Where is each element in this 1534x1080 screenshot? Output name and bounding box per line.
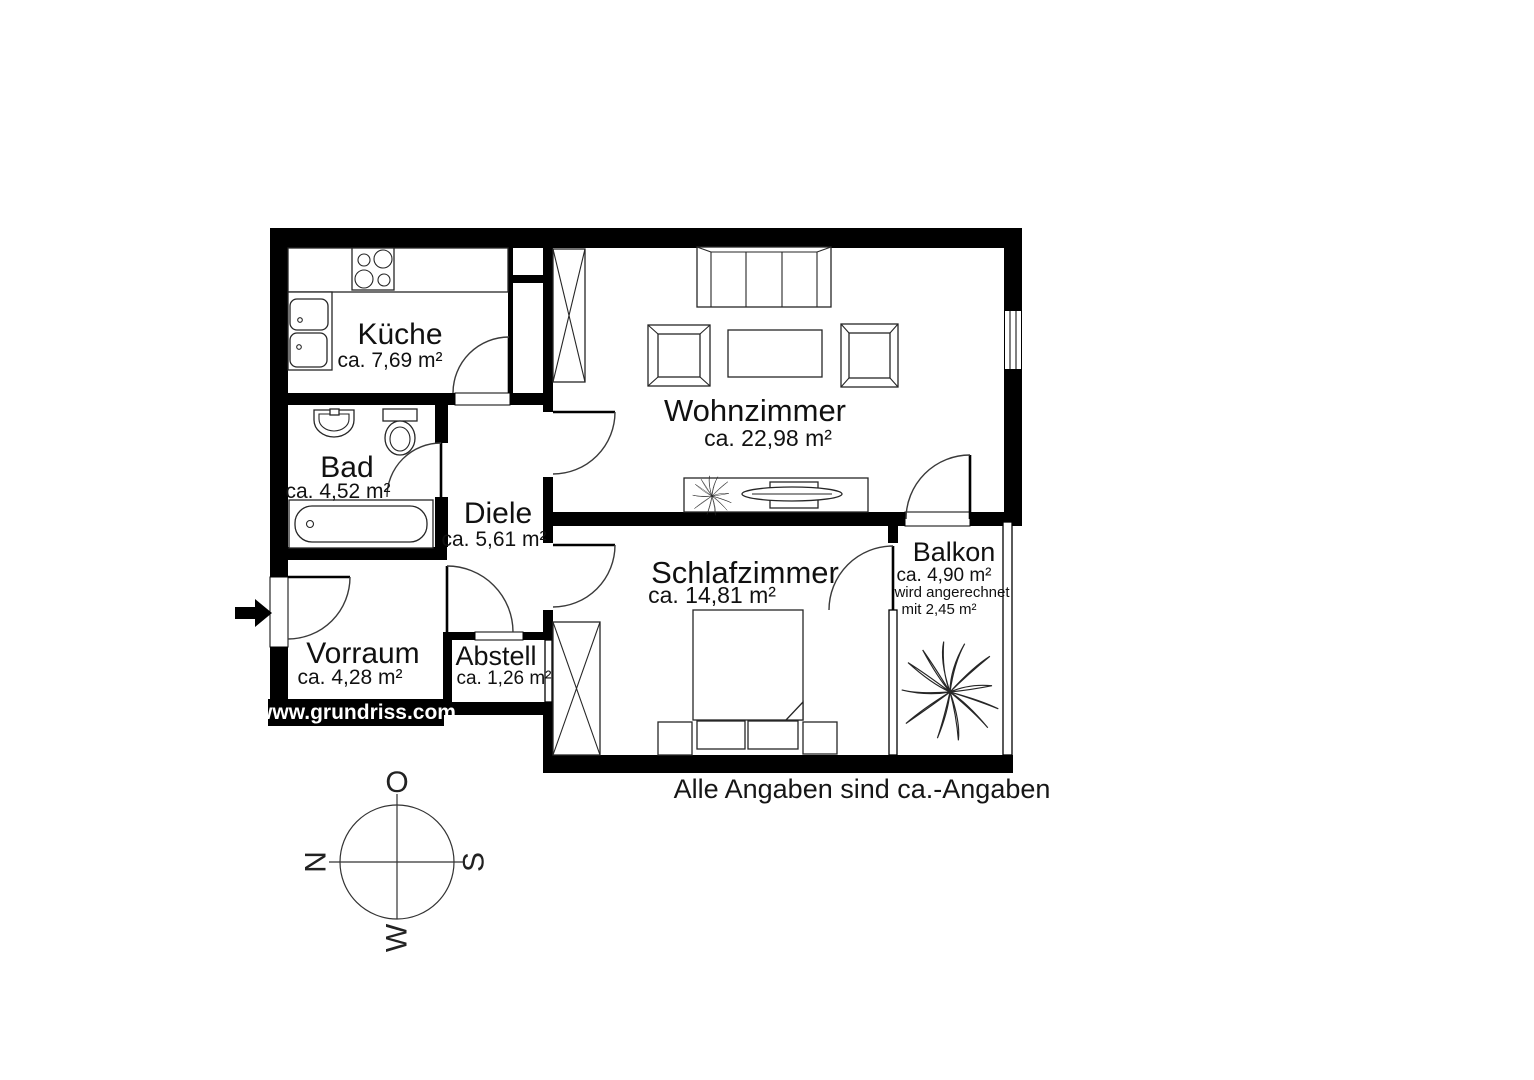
compass-north-label: N [300, 851, 333, 873]
wall-wohnzimmer-bottom-right [970, 512, 1022, 526]
wall-right-lower [1004, 370, 1022, 516]
room-area: ca. 4,90 m² [896, 565, 991, 586]
kueche-door-icon [453, 337, 509, 393]
room-label-vorraum: Vorraum ca. 4,28 m² [297, 637, 419, 689]
room-area: ca. 4,28 m² [297, 666, 402, 689]
wall-left-upper [270, 248, 288, 577]
entrance-opening [270, 577, 288, 647]
coffee-table-icon [728, 330, 822, 377]
nightstand-icon [658, 722, 692, 755]
shaft-strip [513, 283, 543, 393]
wall-schlafzimmer-left [543, 715, 553, 755]
watermark-text: www.grundriss.com [255, 701, 456, 724]
room-area: ca. 14,81 m² [648, 582, 776, 608]
balkon-door-opening [905, 512, 970, 526]
wardrobe-icon [553, 622, 600, 755]
bathtub-icon [289, 500, 433, 548]
compass-west-label: W [381, 923, 414, 952]
vorraum-diele-door-icon [447, 566, 513, 632]
partition-schlafzimmer-balkon [889, 610, 897, 755]
bed-icon [693, 610, 803, 749]
pillow-icon [748, 721, 798, 749]
wall-bad-right-upper [435, 405, 448, 443]
entrance-door-icon [288, 577, 350, 639]
plant-icon [902, 642, 999, 741]
room-label-wohnzimmer: Wohnzimmer ca. 22,98 m² [664, 393, 846, 451]
armchair-icon [841, 324, 898, 387]
compass-south-label: S [458, 852, 491, 872]
room-note: wird angerechnet [893, 584, 1010, 601]
pillow-icon [697, 721, 745, 749]
disclaimer-note: Alle Angaben sind ca.-Angaben [674, 774, 1051, 804]
wall-wohnzimmer-bottom [543, 512, 905, 526]
room-name: Küche [357, 318, 442, 351]
room-name: Diele [464, 497, 532, 530]
room-area: ca. 7,69 m² [337, 349, 442, 372]
kitchen-sink-icon [290, 299, 328, 367]
entrance-arrow-icon [235, 599, 272, 627]
wall-kueche-bottom [288, 393, 455, 405]
shafts [513, 248, 543, 393]
balkon-door-wohnzimmer-icon [906, 455, 970, 519]
schlafzimmer-door-icon [553, 545, 615, 607]
watermark: www.grundriss.com [255, 699, 456, 726]
room-name: Abstell [455, 641, 536, 671]
wall-top [270, 228, 1022, 248]
room-label-diele: Diele ca. 5,61 m² [441, 497, 546, 551]
shaft-niche [513, 248, 543, 275]
room-area: ca. 22,98 m² [704, 425, 832, 451]
balcony-railing [1003, 522, 1012, 755]
room-name: Wohnzimmer [664, 393, 846, 428]
sofa-icon [697, 247, 831, 307]
wall-right-upper [1004, 248, 1022, 310]
room-name: Balkon [913, 537, 996, 567]
wall-vorraum-top [270, 547, 447, 560]
window-icon [1005, 311, 1022, 370]
kueche-door-opening [455, 393, 510, 405]
room-label-bad: Bad ca. 4,52 m² [285, 451, 390, 503]
nightstand-icon [803, 722, 837, 754]
room-label-balkon: Balkon ca. 4,90 m² wird angerechnet mit … [893, 537, 1010, 618]
compass-east-label: O [385, 766, 408, 799]
abstell-opening [475, 632, 523, 640]
room-area: ca. 5,61 m² [441, 528, 546, 551]
armchair-icon [648, 325, 710, 386]
wall-diele-right-upper [543, 248, 553, 412]
wall-abstell-top-left [443, 632, 475, 640]
wall-left-lower [270, 647, 288, 702]
wall-bottom [543, 755, 1013, 773]
room-label-abstell: Abstell ca. 1,26 m² [455, 641, 551, 689]
floorplan-page: Küche ca. 7,69 m² Bad ca. 4,52 m² Diele … [0, 0, 1534, 1080]
room-area: ca. 1,26 m² [456, 668, 551, 689]
room-note: mit 2,45 m² [901, 601, 976, 618]
wall-abstell-left [443, 632, 452, 702]
compass-icon: O N S W [300, 766, 491, 952]
floorplan-canvas: Küche ca. 7,69 m² Bad ca. 4,52 m² Diele … [0, 0, 1534, 1080]
wall-abstell-top-right [523, 632, 545, 640]
toilet-icon [383, 409, 417, 455]
room-label-schlafzimmer: Schlafzimmer ca. 14,81 m² [648, 555, 839, 608]
wall-balkon-divider-top [888, 512, 898, 543]
washbasin-icon [314, 409, 354, 437]
room-area: ca. 4,52 m² [285, 480, 390, 503]
room-label-kueche: Küche ca. 7,69 m² [337, 318, 442, 372]
stove-icon [352, 248, 394, 290]
wohnzimmer-door-icon [553, 412, 615, 474]
closet-icon [553, 249, 585, 382]
